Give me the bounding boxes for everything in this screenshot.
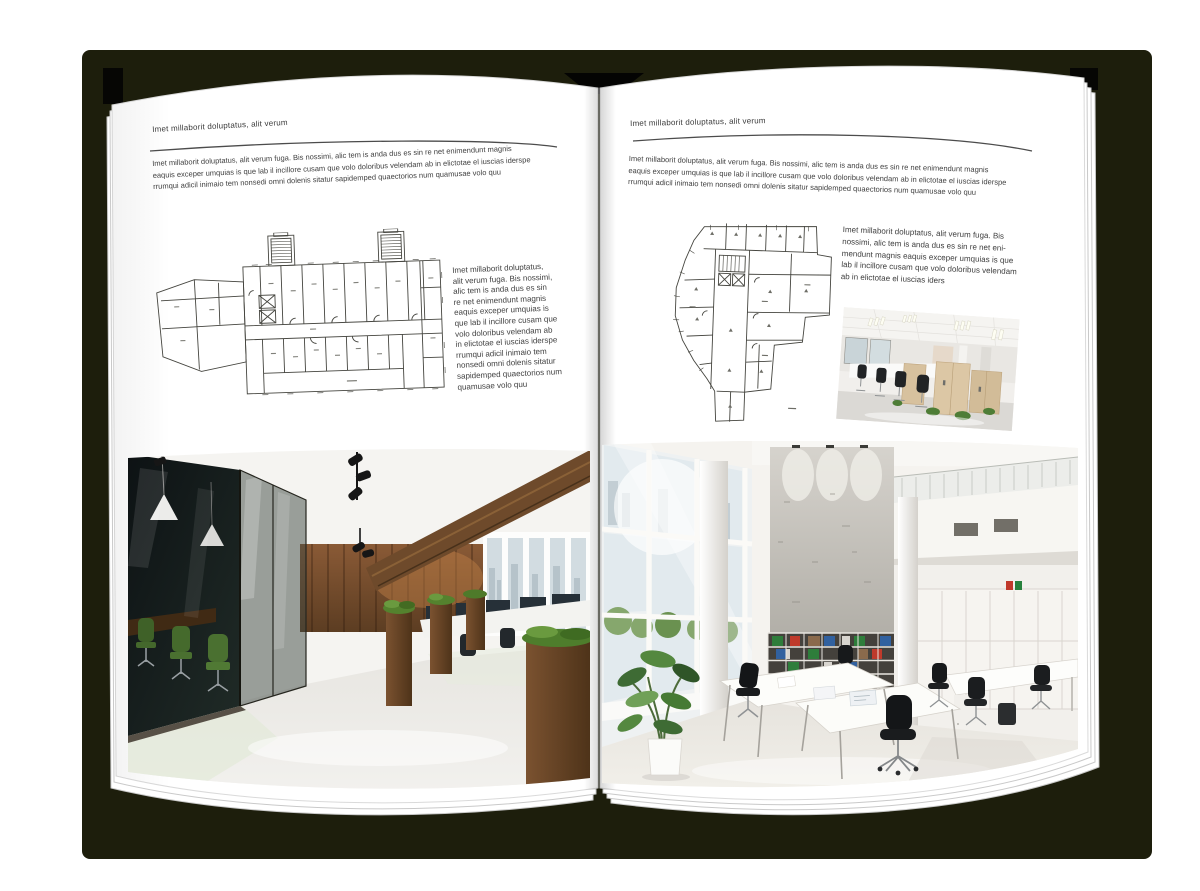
cabinet-wall — [894, 565, 1078, 745]
office-photo-right — [602, 441, 1078, 793]
binding-gap-left — [103, 68, 123, 104]
stair-tower — [268, 232, 295, 266]
meeting-room — [128, 454, 246, 743]
plan-main-block — [243, 260, 444, 394]
right-caption-paragraph: Imet millaborit doluptatus, alit verum f… — [841, 224, 1043, 291]
plan-left-wing — [156, 278, 246, 373]
stair-core — [718, 255, 745, 286]
mockup-canvas: Imet millaborit doluptatus, alit verum I… — [0, 0, 1200, 891]
office-chair — [838, 645, 853, 664]
concrete-wall — [770, 445, 894, 633]
fire-sign — [1006, 581, 1013, 590]
office-chair — [500, 628, 515, 648]
office-photo-left — [128, 448, 590, 793]
waste-bin — [998, 703, 1016, 725]
plant-pot — [648, 739, 682, 775]
stair-tower — [378, 228, 405, 262]
mezzanine-balcony — [894, 457, 1078, 575]
floor-plan-left — [147, 227, 453, 427]
column — [700, 461, 728, 745]
right-header-rule — [630, 131, 1038, 155]
blueprint-sheet — [850, 690, 877, 706]
office-photo-small — [835, 307, 1020, 431]
left-caption-column: Imet millaborit doluptatus, alit verum f… — [452, 260, 598, 393]
glass-partition — [240, 470, 306, 706]
exit-sign — [1015, 581, 1022, 590]
floor-plan-right — [639, 219, 841, 431]
